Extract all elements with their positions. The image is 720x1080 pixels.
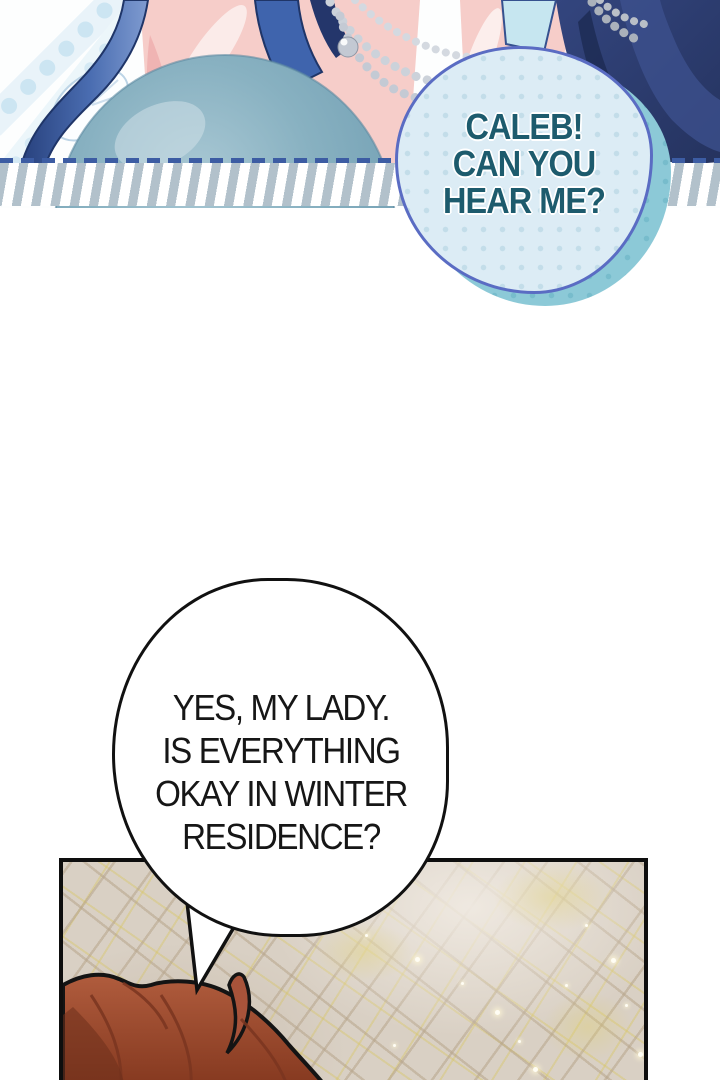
dialogue-line: HEAR ME? bbox=[408, 182, 640, 219]
dialogue-line: CAN YOU bbox=[408, 145, 640, 182]
sparkle bbox=[518, 1040, 521, 1043]
webtoon-page: CALEB! CAN YOU HEAR ME? bbox=[0, 0, 720, 1080]
dialogue-line: CALEB! bbox=[408, 108, 640, 145]
dialogue-line: RESIDENCE? bbox=[126, 815, 437, 858]
sparkle bbox=[565, 984, 568, 987]
caleb-dialogue-text: CALEB! CAN YOU HEAR ME? bbox=[408, 46, 640, 219]
sparkle bbox=[611, 958, 616, 963]
speech-bubble-reply: YES, MY LADY. IS EVERYTHING OKAY IN WINT… bbox=[112, 578, 450, 938]
reply-dialogue-text: YES, MY LADY. IS EVERYTHING OKAY IN WINT… bbox=[126, 578, 437, 858]
sparkle bbox=[495, 1010, 500, 1015]
sparkle bbox=[415, 957, 420, 962]
sparkle bbox=[533, 1067, 538, 1072]
speech-bubble-caleb: CALEB! CAN YOU HEAR ME? bbox=[393, 44, 673, 308]
dialogue-line: OKAY IN WINTER bbox=[126, 772, 437, 815]
mortar-tint bbox=[543, 992, 633, 1062]
sparkle bbox=[625, 1004, 628, 1007]
sparkle bbox=[585, 924, 588, 927]
mortar-tint bbox=[493, 862, 613, 932]
sparkle bbox=[638, 1052, 643, 1057]
dialogue-line: IS EVERYTHING bbox=[126, 729, 437, 772]
sparkle bbox=[461, 982, 464, 985]
dialogue-line: YES, MY LADY. bbox=[126, 686, 437, 729]
